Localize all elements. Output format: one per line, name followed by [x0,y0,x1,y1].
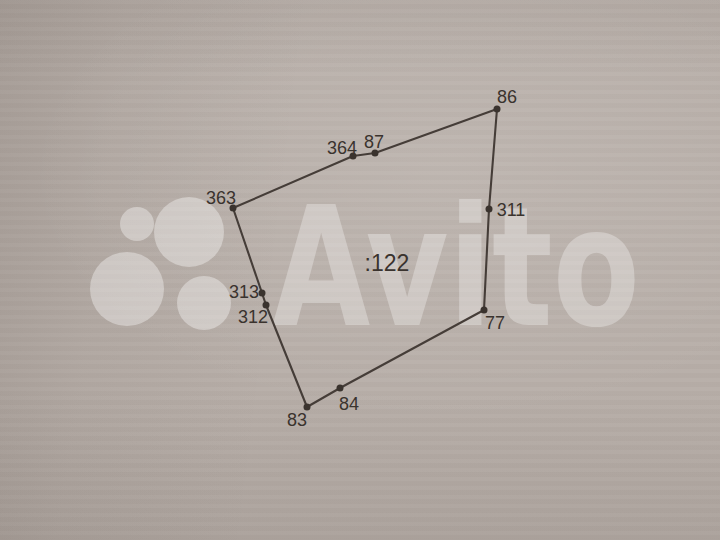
avito-logo-circle [90,252,164,326]
vertex-label-364: 364 [327,138,357,158]
vertex-label-313: 313 [229,282,259,302]
vertex-dot-86 [494,106,501,113]
avito-logo-circle [154,197,224,267]
avito-logo-circle [120,207,154,241]
vertex-label-311: 311 [497,200,526,220]
vertex-dot-313 [259,290,266,297]
vertex-label-312: 312 [238,307,268,327]
cadastral-number-label: :122 [365,250,410,276]
avito-watermark-text: Avito [272,172,640,364]
land-plot-diagram: Avito 8631177848331231336336487:122 [0,0,720,540]
cadastral-plan-photo: Avito 8631177848331231336336487:122 [0,0,720,540]
vertex-label-77: 77 [485,313,505,333]
vertex-label-83: 83 [287,410,307,430]
vertex-label-86: 86 [497,87,517,107]
avito-logo-circle [177,276,231,330]
vertex-label-363: 363 [206,188,236,208]
vertex-dot-311 [486,206,493,213]
vertex-dot-84 [337,385,344,392]
vertex-label-87: 87 [364,132,384,152]
vertex-label-84: 84 [339,394,359,414]
